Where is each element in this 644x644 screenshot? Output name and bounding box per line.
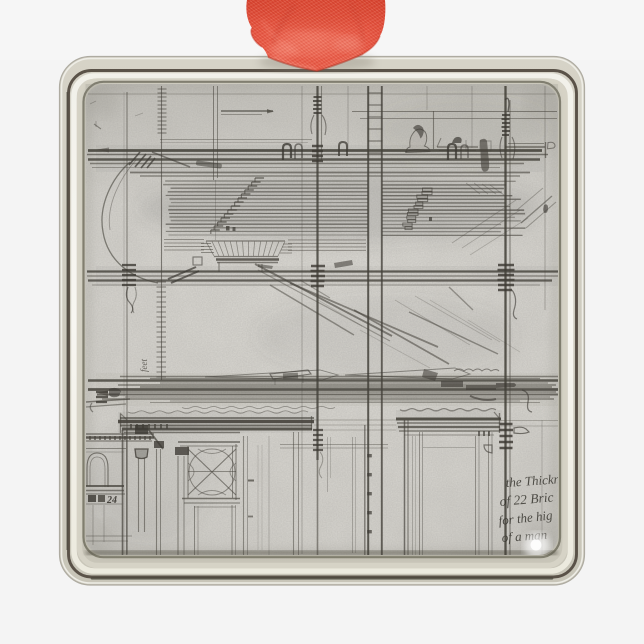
svg-text:feet: feet [139, 359, 149, 372]
